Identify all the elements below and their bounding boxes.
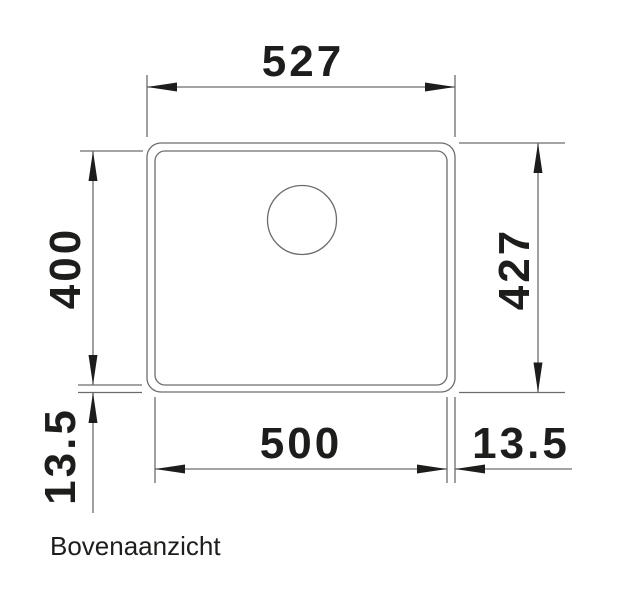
dim-label-bowl-height: 400 [41,227,90,309]
dim-right-offset: 13.5 [455,397,572,483]
view-caption: Bovenaanzicht [50,531,221,561]
arrow-left-icon [155,465,185,474]
dim-label-outer-width: 527 [262,37,344,86]
dim-bowl-width: 500 [155,397,447,483]
dim-label-outer-height: 427 [490,228,539,310]
arrow-up-icon [89,393,98,424]
drain-hole [268,186,337,255]
sink-outline-group [147,143,455,392]
arrow-up-icon [89,151,98,181]
dim-outer-width: 527 [147,37,455,137]
arrow-right-icon [417,465,447,474]
dim-label-bottom-offset: 13.5 [36,407,85,505]
sink-outer-edge [147,143,455,392]
dim-bowl-height: 400 [41,151,143,385]
arrow-down-icon [89,355,98,385]
dim-outer-height: 427 [459,143,565,393]
dim-label-bowl-width: 500 [260,419,342,468]
dim-label-right-offset: 13.5 [472,419,570,468]
arrow-up-icon [534,143,543,173]
arrow-right-icon [425,83,455,92]
arrow-down-icon [534,363,543,393]
technical-drawing-canvas: 527 400 13.5 427 [0,0,637,600]
dim-bottom-offset: 13.5 [36,393,142,514]
arrow-left-icon [147,83,177,92]
sink-top-view-drawing: 527 400 13.5 427 [0,0,637,600]
